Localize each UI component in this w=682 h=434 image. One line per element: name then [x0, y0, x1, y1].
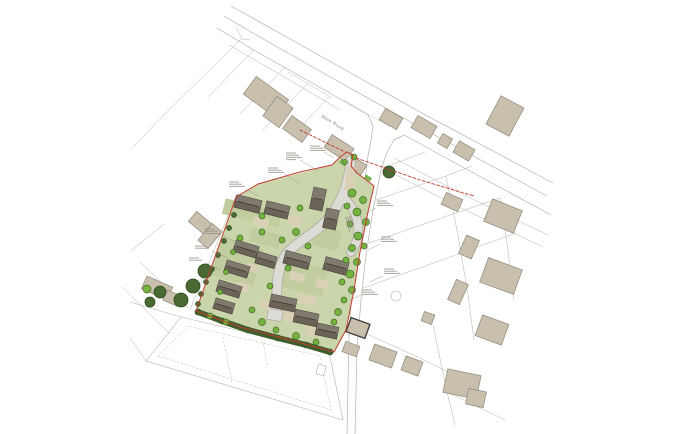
tree — [259, 213, 265, 219]
existing-building — [283, 115, 312, 142]
existing-building — [484, 199, 523, 233]
tree — [305, 243, 311, 249]
tree — [335, 309, 342, 316]
tree — [360, 197, 367, 204]
note-text-illegible — [189, 258, 202, 260]
tree — [143, 285, 151, 293]
note-leader-line — [368, 244, 380, 250]
note-text-illegible — [310, 146, 326, 150]
turning-head — [267, 308, 284, 321]
note-leader-line — [300, 160, 318, 171]
tree — [218, 290, 223, 295]
existing-building-highlighted — [346, 318, 370, 339]
boundary-shrub — [221, 238, 226, 243]
boundary-line — [131, 224, 164, 251]
site-plan-document: Main Road — [0, 0, 682, 434]
tree — [293, 333, 300, 340]
tree — [279, 237, 285, 243]
note-text-illegible — [229, 182, 245, 186]
detail-rect — [316, 364, 326, 376]
existing-building — [475, 315, 509, 345]
tree — [224, 270, 229, 275]
boundary-line — [163, 38, 242, 116]
tree — [354, 259, 361, 266]
tree — [297, 205, 303, 211]
existing-building — [466, 388, 487, 407]
tree — [341, 297, 347, 303]
tree — [313, 339, 319, 345]
tree — [249, 307, 255, 313]
tree — [293, 229, 300, 236]
tree — [344, 203, 350, 209]
tree — [349, 245, 356, 252]
boundary-line — [383, 152, 425, 168]
note-leader-line — [370, 276, 383, 282]
mature-tree — [174, 293, 188, 307]
mature-tree — [154, 286, 166, 298]
boundary-line — [394, 158, 548, 235]
tree — [267, 283, 273, 289]
road-name-label: Main Road — [320, 114, 345, 132]
tree — [285, 265, 291, 271]
note-text-illegible — [268, 168, 284, 172]
boundary-line — [236, 27, 250, 40]
note-text-illegible — [362, 290, 378, 294]
existing-building — [441, 192, 463, 211]
boundary-line — [217, 28, 368, 115]
existing-building — [480, 258, 523, 295]
note-text-illegible — [286, 153, 302, 160]
existing-building — [448, 279, 469, 304]
existing-building — [459, 235, 480, 259]
existing-building — [369, 344, 397, 368]
tree — [259, 319, 266, 326]
boundary-shrub — [231, 212, 236, 217]
note-text-illegible — [381, 237, 397, 241]
note-text-illegible — [384, 269, 400, 273]
boundary-line — [130, 338, 146, 361]
boundary-shrub — [226, 225, 231, 230]
tree — [231, 250, 236, 255]
boundary-line — [369, 198, 500, 243]
dashed-boundary-line — [223, 337, 232, 383]
tree — [343, 160, 348, 165]
tree — [273, 327, 279, 333]
boundary-line — [133, 116, 163, 147]
existing-building — [437, 133, 452, 148]
existing-building — [401, 356, 423, 376]
existing-building — [421, 311, 435, 324]
note-text-illegible — [377, 201, 393, 205]
boundary-line — [386, 170, 543, 247]
site-plan-svg: Main Road — [0, 0, 682, 434]
tree — [331, 319, 337, 325]
tree — [348, 189, 356, 197]
tree — [339, 279, 345, 285]
existing-building — [379, 108, 403, 129]
existing-building — [453, 141, 475, 161]
existing-building — [486, 96, 524, 136]
tree — [237, 235, 243, 241]
tree — [354, 232, 362, 240]
tree — [343, 257, 349, 263]
boundary-line — [288, 72, 332, 98]
mature-tree — [186, 279, 200, 293]
mature-tree — [145, 297, 155, 307]
detail-circle — [391, 291, 401, 301]
tree — [259, 229, 265, 235]
tree — [353, 208, 361, 216]
tree — [346, 270, 354, 278]
